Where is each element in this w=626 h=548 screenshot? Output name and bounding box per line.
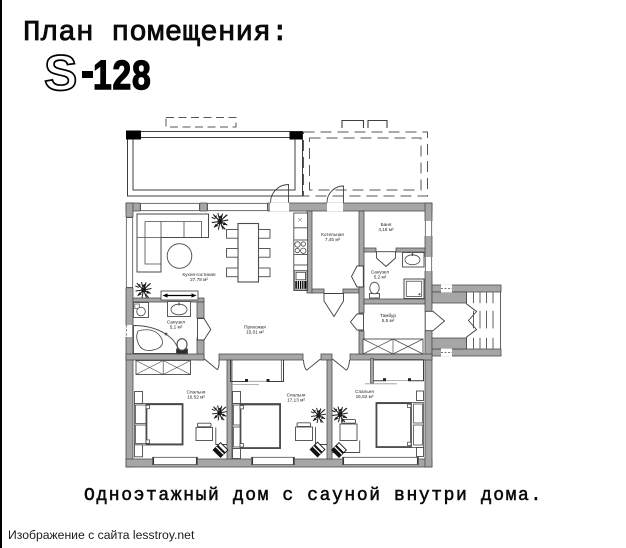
svg-text:17,13 м²: 17,13 м² bbox=[287, 397, 305, 402]
svg-text:16,52 м²: 16,52 м² bbox=[356, 394, 374, 399]
svg-text:16,52 м²: 16,52 м² bbox=[187, 394, 205, 399]
svg-text:5,1 м²: 5,1 м² bbox=[170, 324, 183, 329]
svg-text:5,5 м²: 5,5 м² bbox=[382, 318, 395, 323]
svg-text:15,01 м²: 15,01 м² bbox=[246, 329, 264, 334]
svg-text:4,18 м²: 4,18 м² bbox=[378, 227, 394, 232]
svg-text:27,78 м²: 27,78 м² bbox=[190, 277, 208, 282]
svg-text:5,2 м²: 5,2 м² bbox=[374, 274, 387, 279]
svg-text:7,45 м²: 7,45 м² bbox=[325, 237, 341, 242]
